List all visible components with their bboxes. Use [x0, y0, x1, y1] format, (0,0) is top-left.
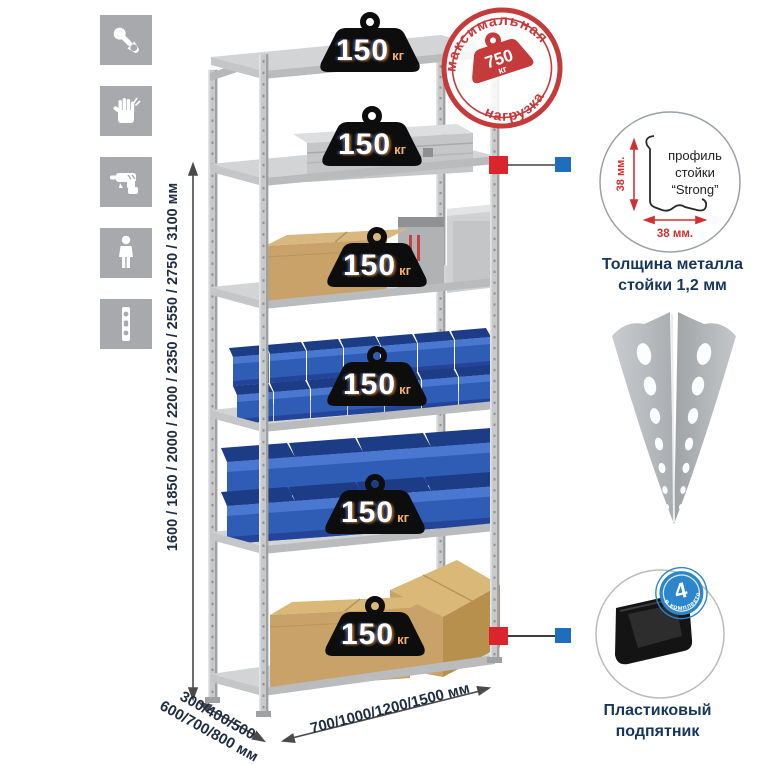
- weight-badge: 150кг: [312, 106, 432, 170]
- height-dimension-label: 1600 / 1850 / 2000 / 2200 / 2350 / 2550 …: [165, 97, 185, 637]
- shelf-load-unit: кг: [399, 382, 411, 397]
- connector-line-bottom: [507, 635, 557, 637]
- profile-label-line1: профиль: [668, 148, 722, 163]
- profile-label-line3: “Strong”: [672, 182, 719, 197]
- profile-caption: Толщина металла стойки 1,2 мм: [580, 254, 765, 296]
- profile-dim-vertical: 38 мм.: [615, 157, 627, 192]
- profile-label-line2: стойки: [675, 165, 715, 180]
- shelf-load-value: 150: [341, 496, 394, 529]
- connector-blue-square-top: [555, 157, 571, 172]
- shelf-load-value: 150: [343, 368, 396, 401]
- angle-post-image: [600, 302, 748, 534]
- shelf-load-value: 150: [341, 618, 394, 651]
- connector-blue-square-bottom: [555, 628, 571, 643]
- shelf-load-value: 150: [336, 34, 389, 67]
- shelf-load-unit: кг: [397, 632, 409, 647]
- connector-red-square-bottom: [489, 627, 508, 645]
- profile-detail-circle: 38 мм. 38 мм. профиль стойки “Strong”: [598, 110, 744, 256]
- weight-badge: 150кг: [310, 12, 430, 76]
- profile-dim-horizontal: 38 мм.: [657, 228, 693, 240]
- shelf-load-unit: кг: [394, 142, 406, 157]
- shelf-load-unit: кг: [397, 510, 409, 525]
- shelf-load-value: 150: [338, 128, 391, 161]
- shelf-load-value: 150: [343, 249, 396, 282]
- shelf-load-unit: кг: [392, 48, 404, 63]
- foot-caption-line1: Пластиковый: [575, 700, 740, 721]
- weight-badge: 150кг: [317, 227, 437, 291]
- shelf-load-unit: кг: [399, 263, 411, 278]
- profile-caption-line1: Толщина металла: [580, 254, 765, 275]
- infographic-canvas: 1600 / 1850 / 2000 / 2200 / 2350 / 2550 …: [0, 0, 765, 765]
- connector-red-square-top: [489, 156, 508, 174]
- weight-badge: 150кг: [315, 474, 435, 538]
- weight-badge: 150кг: [317, 346, 437, 410]
- connector-line-top: [507, 164, 557, 166]
- foot-caption: Пластиковый подпятник: [575, 700, 740, 742]
- profile-caption-line2: стойки 1,2 мм: [580, 275, 765, 296]
- foot-caption-line2: подпятник: [575, 721, 740, 742]
- weight-badge: 150кг: [315, 596, 435, 660]
